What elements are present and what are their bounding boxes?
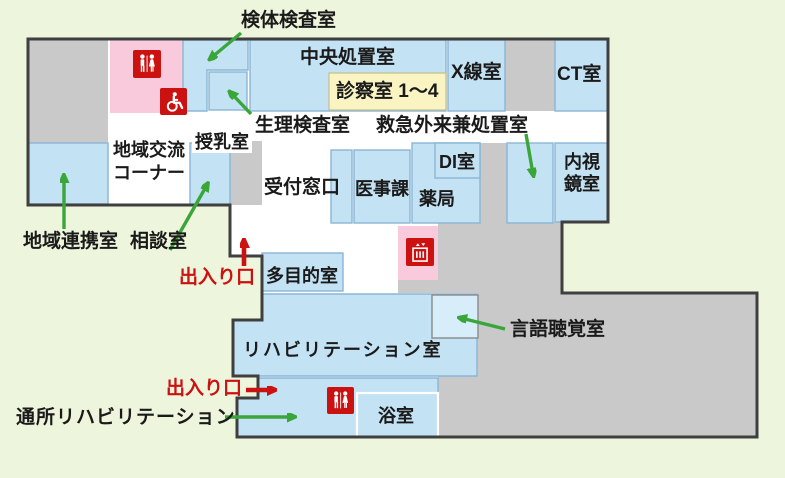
label-physiology-lab: 生理検査室 [255, 115, 350, 137]
label-multipurpose: 多目的室 [266, 265, 338, 287]
hospital-floor-map: 検体検査室 中央処置室 診察室 1～4 X線室 CT室 生理検査室 救急外来兼処… [0, 0, 785, 478]
mens-womens-toilet-icon [133, 50, 161, 78]
label-reception: 受付窓口 [264, 177, 340, 199]
label-rehabilitation: リハビリテーション室 [243, 339, 443, 361]
label-emergency-treatment: 救急外来兼処置室 [376, 115, 528, 137]
label-speech-therapy: 言語聴覚室 [510, 319, 605, 341]
label-pharmacy: 薬局 [419, 188, 455, 210]
label-xray: X線室 [451, 62, 502, 84]
gray-corridor-mid [480, 143, 507, 223]
gray-corridor-north [505, 40, 555, 111]
label-specimen-lab: 検体検査室 [241, 10, 336, 32]
wheelchair-accessible-toilet-icon [160, 88, 187, 115]
room-regional-cooperation [29, 143, 108, 204]
label-regional-cooperation: 地域連携室 [23, 231, 118, 253]
label-bathroom: 浴室 [378, 405, 414, 427]
label-ct: CT室 [557, 64, 601, 86]
label-consult-rooms: 診察室 1～4 [336, 81, 438, 103]
label-nursing-room: 授乳室 [192, 131, 252, 153]
gray-room-northwest [28, 40, 108, 143]
label-medical-affairs: 医事課 [355, 178, 409, 200]
label-entrance-west: 出入り口 [166, 378, 242, 400]
label-community-corner: 地域交流 コーナー [113, 139, 185, 185]
label-outpatient-rehab: 通所リハビリテーション [16, 407, 236, 429]
label-central-treatment: 中央処置室 [300, 47, 395, 69]
mens-womens-toilet-icon [327, 387, 354, 414]
gray-plaza-southeast [438, 293, 757, 437]
label-entrance-north: 出入り口 [179, 267, 255, 289]
label-consultation-room: 相談室 [130, 231, 187, 253]
room-speech-therapy [432, 295, 478, 338]
label-endoscopy: 内視 鏡室 [564, 151, 600, 195]
label-di-room: DI室 [439, 151, 475, 173]
elevator-icon [406, 238, 434, 266]
